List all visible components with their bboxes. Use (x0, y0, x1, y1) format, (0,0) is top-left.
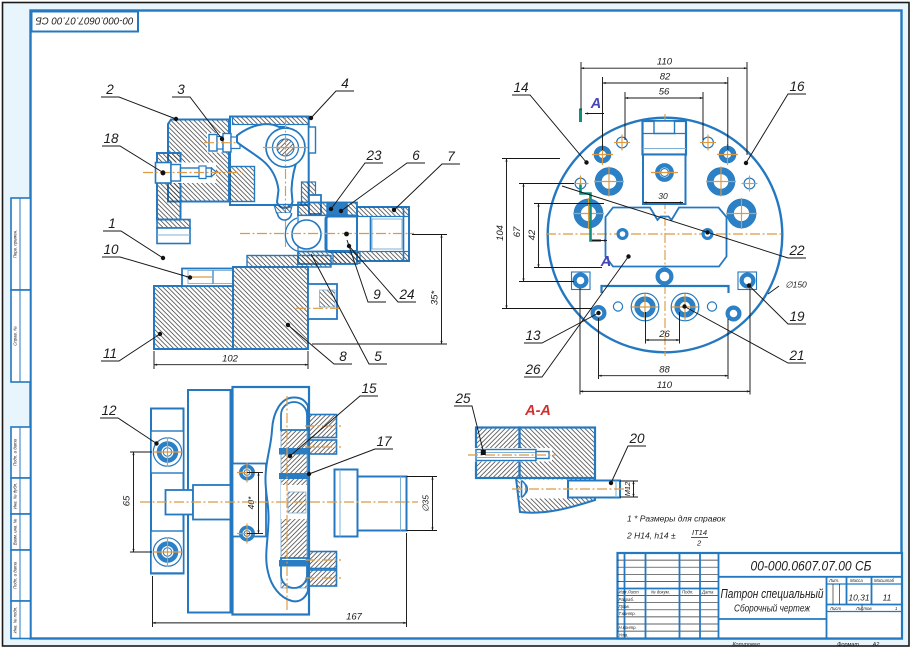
svg-text:Подп.: Подп. (682, 590, 693, 595)
svg-text:22: 22 (788, 243, 805, 258)
svg-text:А: А (590, 96, 601, 112)
svg-text:Дата: Дата (701, 590, 714, 595)
svg-text:∅35: ∅35 (421, 495, 431, 512)
svg-text:∅150: ∅150 (785, 280, 807, 290)
svg-text:7: 7 (447, 149, 455, 164)
svg-text:24: 24 (398, 287, 414, 302)
svg-text:Перв. примен.: Перв. примен. (13, 230, 18, 259)
svg-text:Масштаб: Масштаб (874, 578, 895, 583)
svg-text:88: 88 (659, 365, 670, 376)
svg-text:8: 8 (339, 349, 347, 364)
svg-text:Пров.: Пров. (619, 604, 630, 609)
svg-text:Лит.: Лит. (828, 578, 839, 583)
svg-text:21: 21 (788, 348, 804, 363)
svg-text:IT14: IT14 (692, 528, 707, 537)
svg-text:Масса: Масса (850, 578, 863, 583)
svg-text:Изм Лист: Изм Лист (619, 590, 640, 595)
svg-text:А2: А2 (872, 642, 880, 648)
svg-text:6: 6 (412, 148, 420, 163)
svg-text:Листов: Листов (855, 606, 872, 611)
svg-text:2 Н14, h14 ±: 2 Н14, h14 ± (626, 531, 676, 541)
svg-text:Формат: Формат (837, 642, 859, 648)
svg-text:15: 15 (361, 381, 377, 396)
svg-text:00-000.0607.07.00 СБ: 00-000.0607.07.00 СБ (751, 559, 872, 574)
svg-text:1: 1 (108, 216, 116, 231)
svg-text:10,31: 10,31 (848, 593, 870, 603)
svg-text:Инв. № дубл.: Инв. № дубл. (13, 483, 18, 509)
svg-text:Взам. инв. №: Взам. инв. № (13, 518, 18, 545)
svg-text:12: 12 (101, 403, 117, 418)
svg-text:Подп. и дата: Подп. и дата (13, 438, 18, 466)
svg-text:5: 5 (374, 349, 382, 364)
svg-text:40*: 40* (246, 496, 256, 509)
svg-text:4: 4 (341, 76, 349, 91)
svg-text:Разраб.: Разраб. (619, 597, 635, 602)
svg-text:26: 26 (658, 329, 670, 340)
svg-text:2: 2 (105, 82, 114, 97)
svg-text:Копировал: Копировал (732, 642, 759, 648)
svg-text:Лист: Лист (829, 606, 841, 611)
svg-text:Патрон специальный: Патрон специальный (721, 587, 824, 601)
svg-text:17: 17 (376, 434, 392, 449)
svg-text:19: 19 (789, 309, 805, 324)
svg-text:Сборочный чертеж: Сборочный чертеж (734, 603, 811, 615)
svg-text:3: 3 (177, 82, 185, 97)
svg-text:Утв.: Утв. (619, 632, 629, 637)
svg-text:Н.контр.: Н.контр. (619, 625, 637, 630)
svg-text:56: 56 (659, 87, 670, 98)
svg-text:110: 110 (657, 380, 673, 391)
svg-text:23: 23 (365, 148, 382, 163)
svg-text:20: 20 (628, 431, 645, 446)
svg-text:2: 2 (696, 539, 702, 548)
svg-text:67: 67 (512, 226, 523, 237)
svg-text:104: 104 (495, 225, 506, 241)
svg-text:35*: 35* (430, 291, 441, 306)
svg-text:Справ. №: Справ. № (13, 326, 18, 346)
svg-text:167: 167 (346, 612, 363, 623)
svg-text:30: 30 (658, 191, 668, 201)
svg-text:00-000.0607.07.00 СБ: 00-000.0607.07.00 СБ (35, 15, 133, 27)
svg-text:65: 65 (122, 495, 133, 506)
svg-text:А-А: А-А (524, 403, 551, 419)
svg-text:18: 18 (103, 131, 119, 146)
svg-text:9: 9 (373, 287, 381, 302)
svg-text:16: 16 (789, 79, 805, 94)
svg-text:М12: М12 (623, 481, 632, 496)
svg-text:10: 10 (103, 242, 119, 257)
svg-text:11: 11 (883, 593, 892, 603)
svg-text:Т.контр.: Т.контр. (619, 611, 636, 616)
svg-text:14: 14 (513, 80, 528, 95)
svg-text:82: 82 (660, 72, 671, 83)
svg-text:42: 42 (527, 229, 538, 240)
svg-text:Инв. № подл.: Инв. № подл. (13, 607, 18, 634)
svg-text:26: 26 (524, 362, 541, 377)
svg-text:Подп. и дата: Подп. и дата (13, 561, 18, 589)
svg-text:110: 110 (657, 57, 673, 68)
svg-text:13: 13 (525, 328, 541, 343)
svg-text:11: 11 (103, 346, 117, 361)
svg-text:№ докум.: № докум. (651, 590, 670, 595)
svg-text:102: 102 (222, 354, 239, 365)
svg-text:1 * Размеры для справок: 1 * Размеры для справок (627, 514, 726, 524)
svg-text:25: 25 (454, 391, 471, 406)
